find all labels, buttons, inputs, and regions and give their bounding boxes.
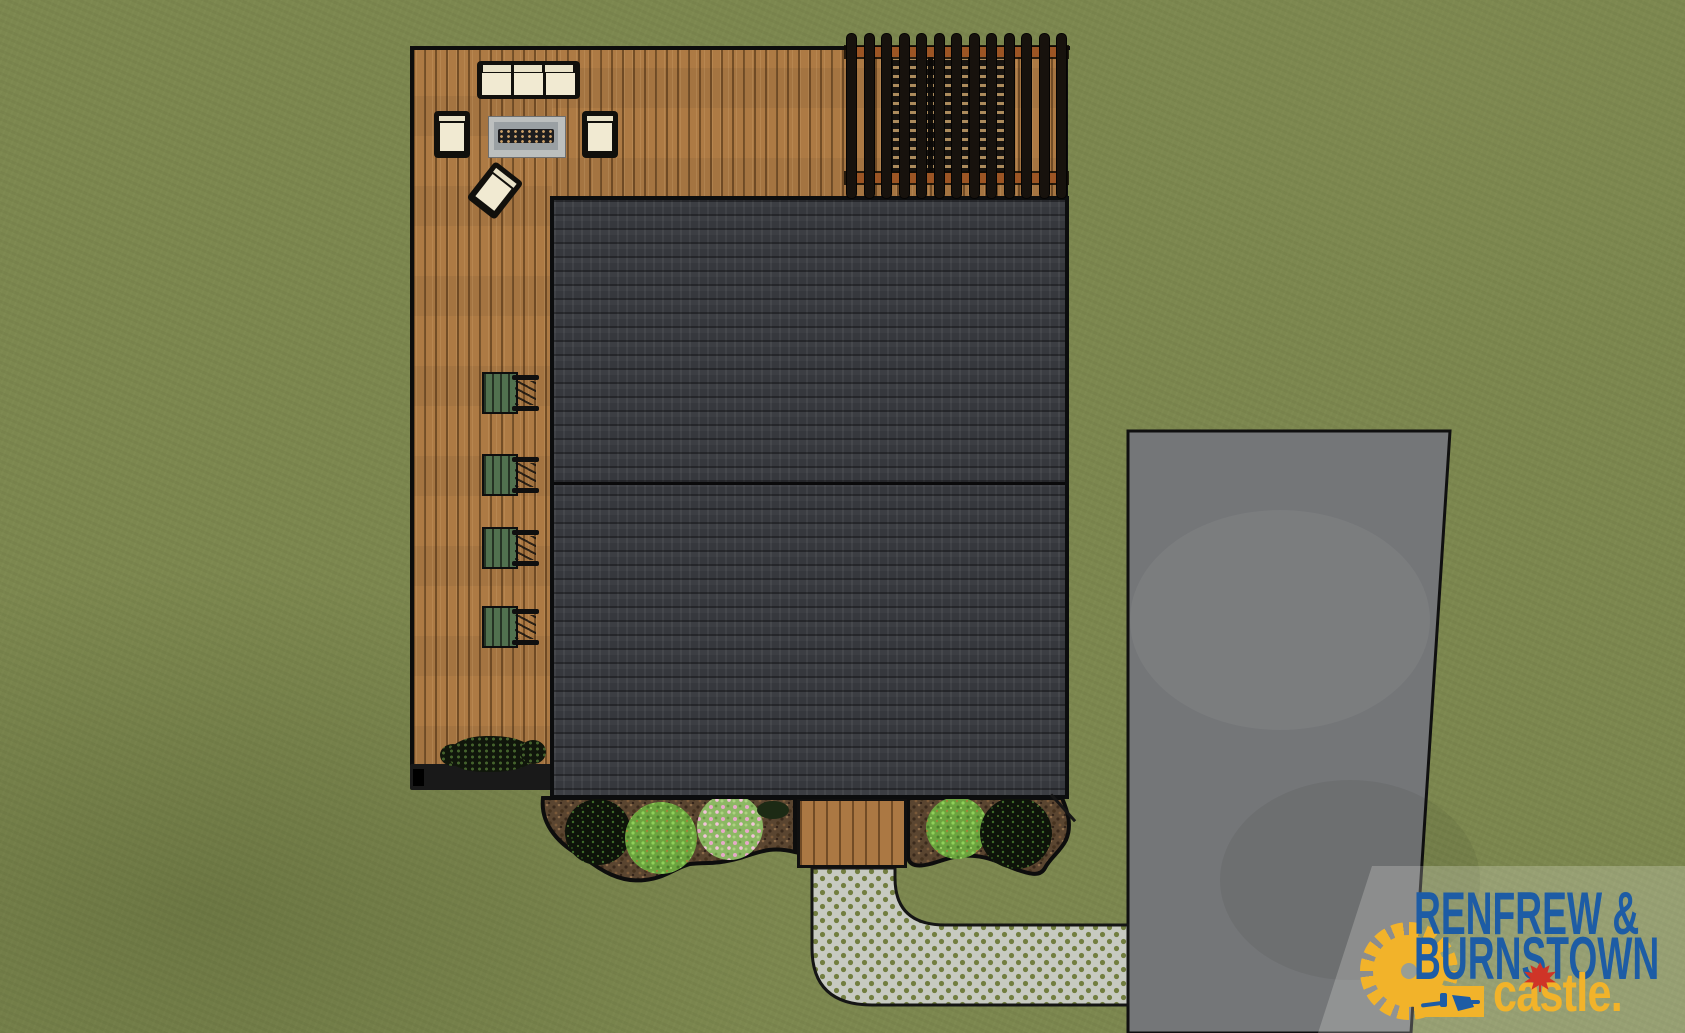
deck-edge-left [410, 46, 414, 768]
armchair-right [582, 111, 618, 158]
pergola [846, 33, 1067, 197]
pergola-slat [1021, 33, 1032, 199]
adirondack-chair [482, 604, 540, 650]
chair-arm [512, 488, 539, 493]
chair-arm [512, 530, 539, 535]
green-shrub [926, 797, 988, 859]
pink-flower-shrub [697, 794, 763, 860]
chair-arm [512, 375, 539, 380]
maple-leaf-icon [1524, 962, 1556, 992]
chair-seat [515, 463, 536, 487]
armchair-left [434, 111, 470, 158]
small-shrub [757, 801, 789, 819]
armchair-back [439, 116, 465, 121]
sofa-seat-cushions [482, 73, 575, 95]
green-shrub [625, 802, 697, 874]
stoop [797, 798, 907, 868]
chair-arm [512, 609, 539, 614]
pergola-slat [846, 33, 857, 199]
pergola-slat [899, 33, 910, 199]
adirondack-chair [482, 452, 540, 498]
outdoor-sofa [477, 61, 580, 99]
pergola-slat [881, 33, 892, 199]
pergola-slat [1039, 33, 1050, 199]
armchair-back [587, 116, 613, 121]
chair-arm [512, 406, 539, 411]
walkway [812, 868, 1128, 1005]
pergola-slat [934, 33, 945, 199]
driveway-sheen [1130, 510, 1430, 730]
pergola-slat [951, 33, 962, 199]
pergola-slat [864, 33, 875, 199]
fire-table [488, 116, 566, 158]
roof-ridge-line [554, 482, 1065, 485]
pergola-slat [916, 33, 927, 199]
pergola-slat [1004, 33, 1015, 199]
fire-table-burner [498, 129, 554, 143]
pergola-slats [846, 33, 1067, 197]
armchair-cushion [440, 123, 464, 151]
house-roof [550, 196, 1069, 799]
dark-shrub [980, 797, 1052, 869]
armchair-cushion [588, 123, 612, 151]
pergola-slat [986, 33, 997, 199]
chair-arm [512, 640, 539, 645]
chair-arm [512, 561, 539, 566]
pergola-slat [969, 33, 980, 199]
sofa-back-cushions [483, 65, 574, 72]
dark-shrub [565, 799, 631, 865]
chair-arm [512, 457, 539, 462]
site-plan-rendering: RENFREW & BURNSTOWN castle. [0, 0, 1685, 1033]
deck-shrub [520, 740, 546, 764]
deck-stair-notch [413, 769, 424, 786]
chair-seat [515, 381, 536, 405]
logo-text-line3: castle. [1493, 966, 1622, 1020]
pergola-slat [1056, 33, 1067, 199]
chair-seat [515, 615, 536, 639]
chair-seat [515, 536, 536, 560]
adirondack-chair [482, 370, 540, 416]
adirondack-chair [482, 525, 540, 571]
